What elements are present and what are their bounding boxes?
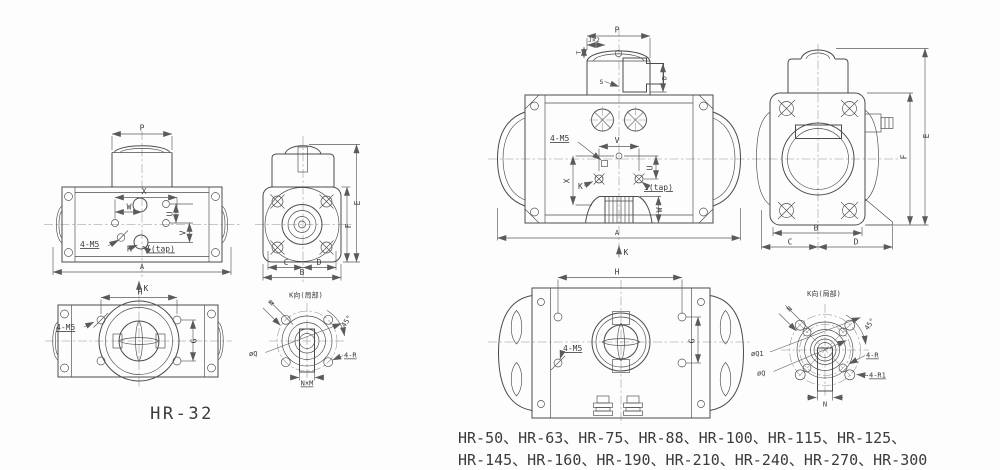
air-fitting	[594, 396, 613, 416]
dim-label-45: 45°	[863, 317, 877, 332]
bolt-hole	[324, 315, 333, 324]
hole	[173, 316, 181, 324]
dim-label-p: P	[615, 26, 620, 35]
dim-label-x: X	[142, 187, 147, 196]
label-oq1: øQ1	[751, 350, 764, 358]
bolt-icon	[778, 100, 795, 117]
hole	[678, 359, 686, 367]
hr-large-drawing: P J×2 T S D	[458, 26, 931, 470]
hr32-drawing: P X W	[44, 124, 362, 425]
dim-label-x: X	[563, 178, 572, 183]
bolt-icon	[65, 249, 73, 257]
dim-label-f: F	[900, 154, 909, 159]
bolt-icon	[61, 364, 69, 372]
bolt-icon	[212, 193, 220, 201]
bolt-icon	[538, 401, 545, 408]
air-fitting-elbow	[623, 58, 664, 92]
label-nxm: N×M	[301, 380, 314, 388]
dim-label-f: F	[344, 223, 353, 228]
dim-label-t: T	[575, 50, 583, 54]
dim-label-v: V	[179, 230, 188, 235]
bolt-icon	[841, 202, 858, 219]
dim-label-g: G	[688, 338, 697, 343]
hole	[163, 220, 170, 227]
drawing-sheet: P X W	[0, 0, 1000, 470]
bolt-icon	[700, 208, 708, 216]
model-label-hr32: HR-32	[150, 404, 214, 424]
hr32-side-view: E F C D B	[255, 136, 362, 284]
air-fitting	[865, 114, 881, 132]
dim-label-d-fitting: D	[661, 76, 669, 80]
detail-title: K向(局部)	[289, 291, 323, 300]
dim-label-e: E	[922, 133, 931, 138]
hole	[112, 220, 119, 227]
large-flange-detail: K向(局部) N 45° øQ1	[751, 289, 886, 409]
bolt-icon	[698, 401, 705, 408]
hole	[163, 201, 170, 208]
hole	[554, 313, 562, 321]
bolt-icon	[538, 299, 545, 306]
hr32-front-view: P X W	[44, 124, 240, 294]
hole	[133, 198, 147, 212]
thread-label-4m5: 4-M5	[550, 134, 569, 143]
dim-label-d: D	[854, 238, 859, 247]
thread-label-4m5: 4-M5	[80, 240, 99, 249]
model-list-line1: HR-50、HR-63、HR-75、HR-88、HR-100、HR-115、HR…	[458, 429, 906, 447]
dim-label-w: W	[655, 207, 664, 212]
dim-label-c: C	[788, 238, 793, 247]
bolt-icon	[700, 102, 708, 110]
label-k: K	[127, 245, 132, 254]
hole	[678, 313, 686, 321]
thread-label-4m5: 4-M5	[56, 323, 75, 332]
model-list-line2: HR-145、HR-160、HR-190、HR-210、HR-240、HR-27…	[458, 451, 927, 469]
dim-label-d: D	[317, 258, 322, 267]
large-side-view: E F B C D	[752, 44, 931, 250]
label-4r: 4-R	[344, 352, 357, 360]
large-bottom-view: H G	[488, 268, 752, 425]
dim-label-a: A	[140, 263, 145, 271]
bolt-icon	[61, 310, 69, 318]
bolt-icon	[531, 102, 539, 110]
thread-label-4m5: 4-M5	[563, 344, 582, 353]
bolt-icon	[531, 208, 539, 216]
dim-label-45: 45°	[340, 314, 354, 329]
bolt-icon	[698, 299, 705, 306]
view-arrow-k: K	[624, 248, 629, 257]
dim-label-jx2: J×2	[588, 36, 600, 44]
label-oq: øQ	[249, 350, 257, 358]
label-oq: øQ	[757, 370, 765, 378]
bolt-icon	[208, 364, 216, 372]
dim-label-w: W	[127, 203, 132, 212]
label-4r: 4-R	[866, 352, 879, 360]
label-i-tap: I(tap)	[146, 245, 175, 254]
dim-label-v: V	[615, 136, 620, 145]
tapped-hole	[594, 174, 605, 185]
detail-title: K向(局部)	[807, 289, 841, 298]
technical-drawing: P X W	[0, 0, 1000, 470]
dim-label-u: U	[646, 165, 655, 170]
hr32-bottom-view: H G 4-M5	[45, 288, 232, 425]
label-i-tap: I(tap)	[644, 183, 673, 192]
large-front-view: P J×2 T S D	[488, 26, 750, 259]
dim-label-n-bottom: N	[823, 401, 827, 409]
dim-label-h: H	[138, 288, 143, 297]
bolt-icon	[65, 193, 73, 201]
view-arrow-k: K	[144, 284, 149, 293]
label-4r1: 4-R1	[869, 372, 886, 380]
label-s: S	[600, 78, 604, 86]
hr32-flange-detail: K向(局部) N 45° øQ 4-R N×M	[249, 291, 357, 388]
dim-label-e: E	[353, 200, 362, 205]
bolt-icon	[778, 202, 795, 219]
label-k: K	[578, 182, 583, 191]
dim-label-b: B	[814, 224, 819, 233]
dim-label-b: B	[300, 268, 305, 277]
dim-label-u: U	[166, 211, 175, 216]
air-fitting	[624, 396, 643, 416]
dim-label-p: P	[140, 124, 145, 133]
dim-label-n-top: N	[785, 305, 794, 314]
dim-label-h: H	[615, 268, 620, 277]
bolt-icon	[841, 100, 858, 117]
bolt-icon	[212, 249, 220, 257]
dim-label-g: G	[190, 338, 199, 343]
bolt-icon	[208, 310, 216, 318]
dim-label-c: C	[284, 258, 289, 267]
bolt-hole	[803, 364, 811, 372]
